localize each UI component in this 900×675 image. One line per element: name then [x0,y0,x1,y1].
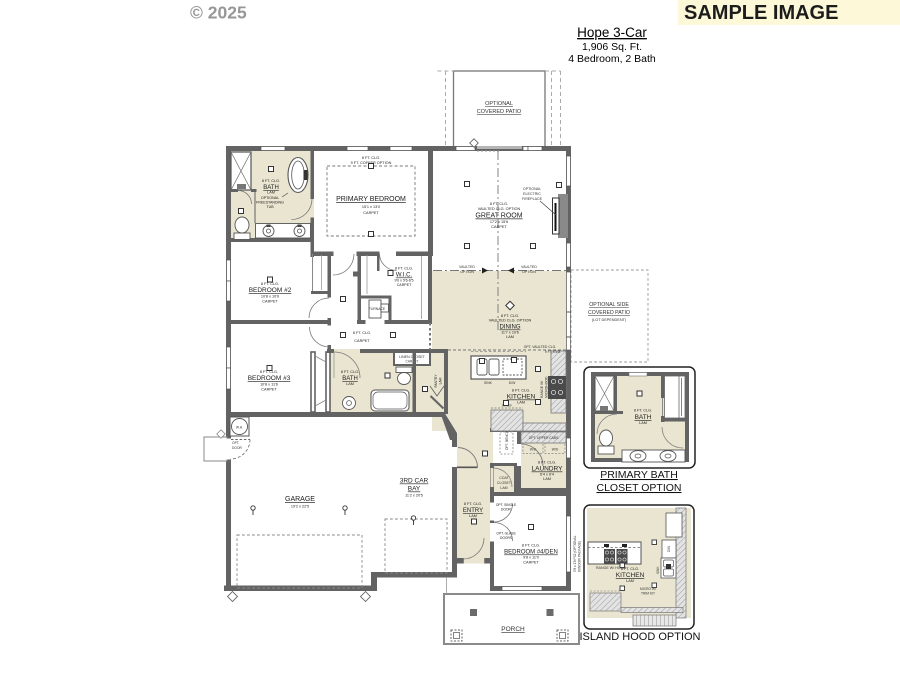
svg-text:8 FT. CLG.: 8 FT. CLG. [260,370,278,374]
svg-text:8 FT. CLG.: 8 FT. CLG. [261,282,279,286]
svg-text:LAM: LAM [639,421,647,425]
svg-text:DOOR: DOOR [501,508,512,512]
svg-text:ELECTRIC: ELECTRIC [523,192,541,196]
svg-text:D/W: D/W [667,546,671,552]
svg-text:CARPET: CARPET [261,388,277,392]
svg-text:DOOR: DOOR [232,446,243,450]
svg-text:VAULTED CLG. OPTION: VAULTED CLG. OPTION [489,319,532,323]
svg-text:OPT. UPPER CABS.: OPT. UPPER CABS. [529,436,559,440]
svg-text:LAM: LAM [626,579,634,583]
svg-text:CARPET: CARPET [363,211,379,215]
svg-text:LAM: LAM [267,191,275,195]
svg-text:LAM: LAM [543,477,551,481]
svg-text:LAM: LAM [469,514,477,518]
svg-text:(LOT DEPENDENT): (LOT DEPENDENT) [592,318,627,322]
svg-text:LINEN CLOSET: LINEN CLOSET [399,355,426,359]
svg-text:OPT. VAULTED CLG.: OPT. VAULTED CLG. [524,345,557,349]
svg-text:8 FT. CLG.: 8 FT. CLG. [501,314,519,318]
svg-text:6'4 x 6'4: 6'4 x 6'4 [540,473,554,477]
svg-text:GREAT ROOM: GREAT ROOM [475,213,522,220]
svg-text:OPT. BENCH: OPT. BENCH [505,430,509,450]
svg-text:8 FT. CLG.: 8 FT. CLG. [262,179,280,183]
svg-text:8 FT. CLG.: 8 FT. CLG. [522,544,540,548]
svg-text:5'8 x 1'8 FS2 (OPTIONAL: 5'8 x 1'8 FS2 (OPTIONAL [573,535,577,572]
svg-text:CARPET: CARPET [354,339,370,343]
svg-text:OPT. SINGLE: OPT. SINGLE [496,503,517,507]
svg-text:COVERED PATIO: COVERED PATIO [477,109,522,115]
svg-text:COAT: COAT [499,476,509,480]
svg-text:OPTIONAL: OPTIONAL [523,187,541,191]
svg-text:FIREPLACE: FIREPLACE [522,197,543,201]
svg-text:PRIMARY BATH: PRIMARY BATH [600,469,678,481]
svg-text:OPTION: OPTION [522,270,536,274]
svg-text:FREESTANDING: FREESTANDING [256,201,284,205]
svg-text:CARPET: CARPET [406,360,419,364]
svg-text:9 FT. COFFER OPTION: 9 FT. COFFER OPTION [351,161,392,165]
svg-text:BATH: BATH [635,414,652,421]
svg-text:BAY: BAY [408,486,421,493]
svg-text:11'2 x 20'5: 11'2 x 20'5 [405,494,423,498]
svg-text:LAM: LAM [517,401,525,405]
svg-text:11'7 x 10'6: 11'7 x 10'6 [501,331,519,335]
svg-text:19'2 x 22'5: 19'2 x 22'5 [291,505,309,509]
svg-text:CARPET: CARPET [397,283,412,287]
svg-text:8 FT. CLG.: 8 FT. CLG. [362,156,380,160]
svg-text:OPTIONAL: OPTIONAL [485,101,513,107]
svg-text:TUB: TUB [266,205,274,209]
svg-text:9 FT. CLG.: 9 FT. CLG. [545,350,561,354]
svg-text:OPT. GLASS: OPT. GLASS [496,532,516,536]
svg-text:8 FT. CLG.: 8 FT. CLG. [634,409,652,413]
svg-text:W/D: W/D [552,448,559,452]
svg-text:VAULTED: VAULTED [459,265,475,269]
svg-text:WINDOW PACKAGE): WINDOW PACKAGE) [578,541,582,572]
svg-text:8 FT. CLG.: 8 FT. CLG. [341,370,359,374]
svg-text:8 FT. CLG.: 8 FT. CLG. [490,202,508,206]
svg-text:CARPET: CARPET [262,300,278,304]
svg-text:9'8 x 11'0: 9'8 x 11'0 [523,556,539,560]
svg-text:W.H.: W.H. [236,426,243,430]
svg-text:8 FT. CLG.: 8 FT. CLG. [395,267,413,271]
svg-text:LAM: LAM [500,486,507,490]
svg-text:PRIMARY BEDROOM: PRIMARY BEDROOM [336,196,406,203]
svg-text:LAM: LAM [439,377,443,384]
svg-text:Hope 3-Car: Hope 3-Car [577,25,647,40]
svg-text:1,906 Sq. Ft.: 1,906 Sq. Ft. [582,41,642,53]
svg-text:FURNACE: FURNACE [369,307,386,311]
svg-text:D/W: D/W [509,381,516,385]
svg-text:CLOSET: CLOSET [497,481,512,485]
svg-text:RANGE W/: RANGE W/ [540,381,544,398]
svg-text:LAUNDRY: LAUNDRY [532,466,564,473]
svg-text:OPTIONAL: OPTIONAL [261,196,279,200]
svg-text:CARPET: CARPET [491,225,507,229]
svg-text:TRIM KIT: TRIM KIT [641,592,655,596]
svg-text:VAULTED: VAULTED [521,265,537,269]
svg-text:15'1 x 13'0: 15'1 x 13'0 [362,205,380,209]
svg-text:CARPET: CARPET [523,561,539,565]
svg-text:8 FT. CLG.: 8 FT. CLG. [353,331,371,335]
svg-text:GARAGE: GARAGE [285,496,315,503]
svg-text:8 FT. CLG.: 8 FT. CLG. [538,461,556,465]
svg-text:LAM: LAM [506,335,514,339]
svg-text:DOORS: DOORS [500,536,513,540]
svg-text:SINK: SINK [484,381,493,385]
svg-text:8 FT. CLG.: 8 FT. CLG. [512,389,530,393]
svg-text:LAM: LAM [346,382,354,386]
svg-text:KITCHEN: KITCHEN [507,394,536,401]
svg-text:© 2025: © 2025 [190,3,247,23]
svg-text:OPTIONAL SIDE: OPTIONAL SIDE [589,302,629,308]
svg-text:KITCHEN: KITCHEN [616,572,645,579]
svg-text:8 FT. CLG.: 8 FT. CLG. [464,502,482,506]
svg-text:COVERED PATIO: COVERED PATIO [588,310,630,316]
svg-text:CLOSET OPTION: CLOSET OPTION [597,482,682,494]
svg-text:ISLAND HOOD OPTION: ISLAND HOOD OPTION [579,631,700,643]
svg-text:10'8 x 10'6: 10'8 x 10'6 [261,295,279,299]
svg-text:OPTION: OPTION [460,270,474,274]
svg-text:PORCH: PORCH [501,626,525,633]
svg-text:MICROHOOD: MICROHOOD [545,376,549,398]
svg-text:4 Bedroom, 2 Bath: 4 Bedroom, 2 Bath [568,53,656,65]
svg-text:PANTRY: PANTRY [434,374,438,388]
svg-text:10'8 x 11'6: 10'8 x 11'6 [260,383,278,387]
svg-text:BEDROOM #3: BEDROOM #3 [248,375,291,382]
svg-text:SINK: SINK [656,566,660,574]
svg-text:VAULTED CLG. OPTION: VAULTED CLG. OPTION [478,207,521,211]
svg-text:17'2 x 15'6: 17'2 x 15'6 [490,220,508,224]
svg-text:9'0 x 5'6-6'5: 9'0 x 5'6-6'5 [394,279,413,283]
svg-text:3RD CAR: 3RD CAR [400,478,429,485]
svg-text:SAMPLE IMAGE: SAMPLE IMAGE [684,2,838,24]
svg-text:BEDROOM #2: BEDROOM #2 [249,287,292,294]
svg-text:OPT.: OPT. [232,441,239,445]
